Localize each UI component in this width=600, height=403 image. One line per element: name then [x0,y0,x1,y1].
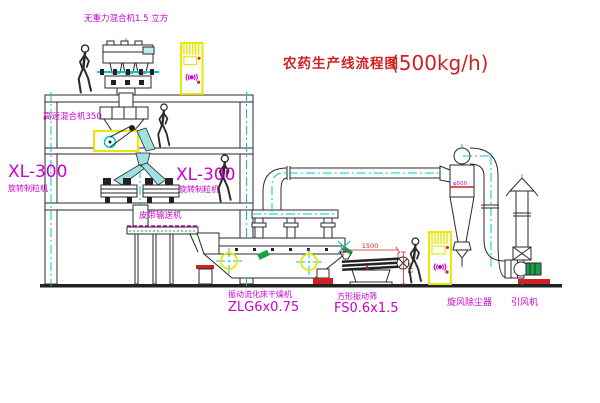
fan-motor [526,263,541,275]
control-cabinet-top [181,43,203,94]
fan-label: 引风机 [511,296,538,308]
square-vibrating-sieve: 1500 341 [340,242,414,285]
support-red-right [313,278,333,284]
title-capacity: (500kg/h) [391,51,488,75]
fan-and-stack [463,148,550,286]
belt-conveyor [127,226,198,284]
cyclone-diameter-note: φ500 [453,181,468,187]
fluid-bed-dryer [196,218,350,284]
fan-base [518,279,550,284]
y-split-pipe [114,153,166,185]
operator-second-floor [158,104,169,147]
exhaust-duct [252,166,449,218]
sieve-model-label: FS0.6x1.5 [334,301,399,316]
dryer-model-label: ZLG6x0.75 [228,300,299,315]
process-flow-diagram: 1500 341 φ500 [0,0,600,403]
dim-width-text: 1500 [362,242,379,250]
stack [516,191,528,247]
operator-top-floor [79,45,91,92]
granulator-right-model: XL-300 [176,165,235,185]
floor-slab-top [45,95,253,102]
granulator-left-name: 旋转制粒机 [8,183,48,193]
control-cabinet-right [429,232,451,284]
granulator-left-model: XL-300 [8,162,67,182]
high-speed-mixer-label: 高速混合机350 [43,111,102,122]
belt-conveyor-label: 皮带输送机 [139,210,182,221]
granulator-right-name: 旋转制粒机 [179,184,219,194]
gravity-mixer-label: 无重力混合机1.5 立方 [84,13,168,24]
floor-slab-low [45,203,253,210]
dryer-feed-inlet [197,233,219,254]
high-speed-mixer [94,107,155,151]
title-text: 农药生产线流程图 [282,55,399,72]
stack-rain-cap [510,178,534,191]
cyclone-label: 旋风除尘器 [447,296,492,308]
dryer-name-label: 振动流化床干燥机 [228,289,292,299]
operator-ground [409,238,421,283]
support-red-left [196,265,214,269]
drawing-title: 农药生产线流程图 (500kg/h) [282,51,488,75]
ground-line [40,284,562,288]
sieve-name-label: 方形振动筛 [337,291,377,301]
drawing-canvas: 1500 341 φ500 [0,0,600,403]
